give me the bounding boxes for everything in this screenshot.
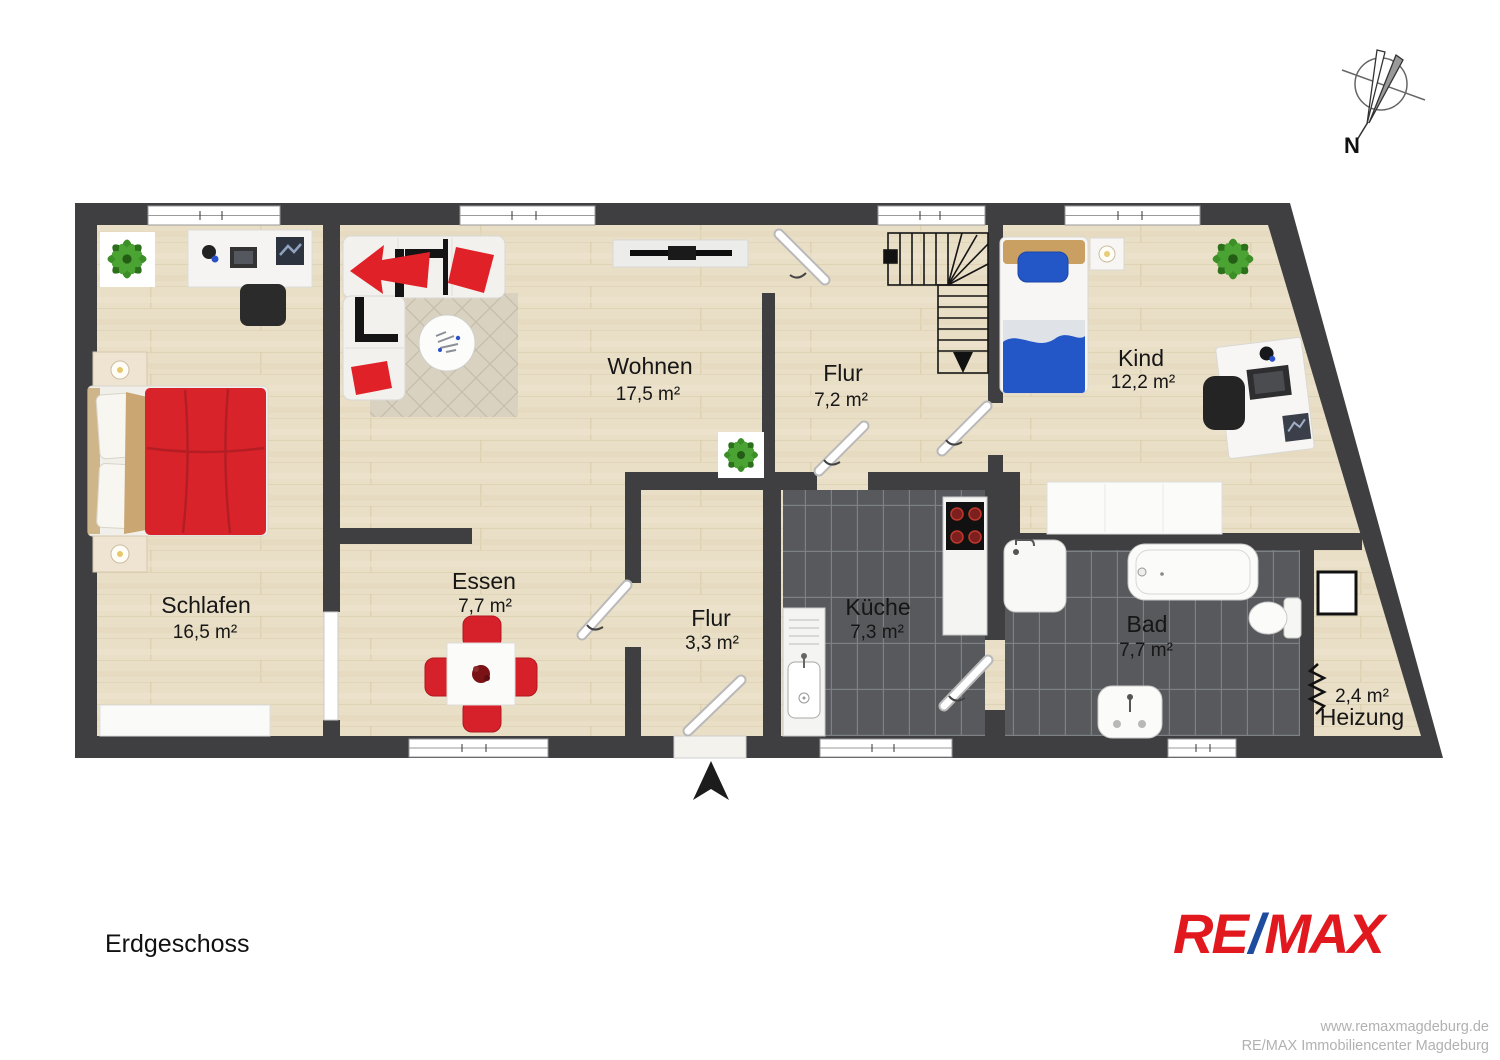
window-schlafen-top <box>148 206 280 225</box>
room-label-flur-og: Flur <box>823 360 863 386</box>
wall-flur33-left-upper <box>625 490 641 583</box>
window-bad-bottom <box>1168 739 1236 757</box>
plant-icon <box>107 239 146 278</box>
window-flur-top <box>878 206 985 225</box>
footer-url: www.remaxmagdeburg.de <box>1320 1019 1489 1035</box>
stair-post <box>884 250 897 263</box>
kid-desk-chair <box>1203 376 1245 430</box>
window-wohnen-top <box>460 206 595 225</box>
room-area-essen: 7,7 m² <box>458 596 512 617</box>
compass-north-label: N <box>1344 133 1360 158</box>
entrance-threshold <box>674 736 746 758</box>
window-kind-top <box>1065 206 1200 225</box>
door-schlafen-essen <box>324 612 338 720</box>
sideboard <box>100 705 270 736</box>
stove <box>943 497 987 635</box>
room-label-wohnen: Wohnen <box>607 353 692 379</box>
window-essen-bottom <box>409 739 548 757</box>
room-area-kueche: 7,3 m² <box>850 622 904 643</box>
logo-max: MAX <box>1264 902 1388 965</box>
plant-icon <box>724 438 758 472</box>
compass-rose: N <box>1342 50 1425 158</box>
plant-icon <box>1213 239 1254 280</box>
wall-kueche-bad-lower <box>985 710 1005 736</box>
room-label-kueche: Küche <box>845 594 910 620</box>
wall-bad-heizung <box>1300 550 1314 736</box>
entrance-arrow-icon <box>693 761 729 800</box>
wall-flur33-kueche <box>763 490 781 736</box>
boiler <box>1318 572 1356 614</box>
wall-flur33-left-lower <box>625 647 641 736</box>
floorplan-page: Schlafen 16,5 m² Wohnen 17,5 m² Essen 7,… <box>0 0 1500 1060</box>
wall-kueche-bad-upper <box>985 472 1005 640</box>
room-label-heizung: Heizung <box>1320 704 1404 730</box>
room-area-wohnen: 17,5 m² <box>616 384 680 405</box>
coffee-table <box>419 315 475 371</box>
room-area-flur-og: 7,2 m² <box>814 390 868 411</box>
window-kueche-bottom <box>820 739 952 757</box>
room-area-kind: 12,2 m² <box>1111 372 1175 393</box>
wall-flur-horizontal-right <box>868 472 988 490</box>
kid-bed <box>1000 237 1088 393</box>
kitchen-sink-unit <box>783 608 825 736</box>
footer-office: RE/MAX Immobiliencenter Magdeburg <box>1242 1038 1489 1054</box>
room-label-kind: Kind <box>1118 345 1164 371</box>
wall-schlafen <box>323 225 340 612</box>
dresser <box>1047 482 1222 534</box>
bathtub <box>1128 544 1258 600</box>
bathroom-sink <box>1098 686 1162 738</box>
room-label-flur-eg: Flur <box>691 605 731 631</box>
footer: www.remaxmagdeburg.de RE/MAX Immobilienc… <box>1242 1019 1489 1054</box>
desk-chair <box>240 284 286 326</box>
shower-tray <box>1004 540 1066 612</box>
logo-re: RE <box>1173 902 1250 965</box>
room-label-essen: Essen <box>452 568 516 594</box>
remax-logo: RE/MAX <box>1173 902 1388 965</box>
room-area-schlafen: 16,5 m² <box>173 622 237 643</box>
wall-wohnen-essen-stub <box>337 528 472 544</box>
tv-board <box>613 240 748 267</box>
room-label-schlafen: Schlafen <box>161 592 251 618</box>
double-bed <box>88 386 268 536</box>
room-area-bad: 7,7 m² <box>1119 640 1173 661</box>
room-area-flur-eg: 3,3 m² <box>685 633 739 654</box>
wall-schlafen-stub <box>323 720 340 736</box>
floor-title: Erdgeschoss <box>105 930 250 958</box>
floorplan-canvas: Schlafen 16,5 m² Wohnen 17,5 m² Essen 7,… <box>0 0 1500 1060</box>
room-label-bad: Bad <box>1127 611 1168 637</box>
